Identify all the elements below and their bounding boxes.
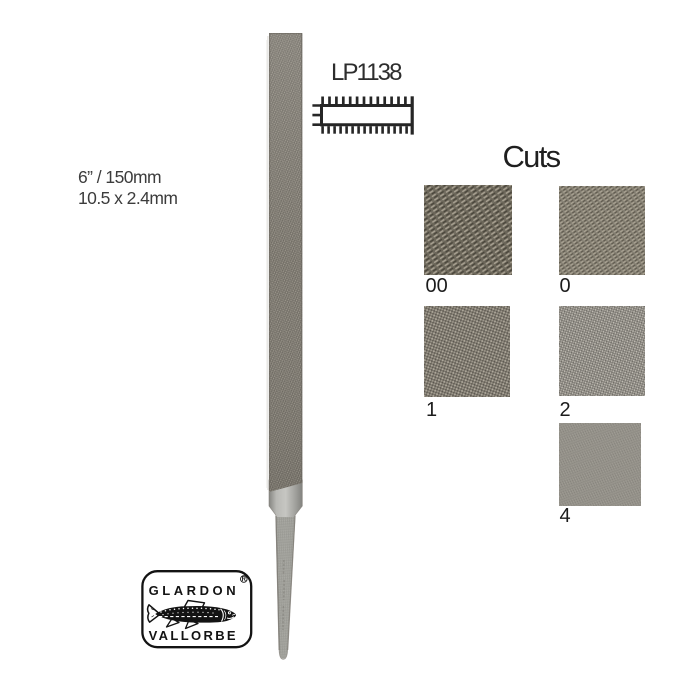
svg-text:R: R	[242, 577, 247, 583]
svg-text:VALLORBE: VALLORBE	[149, 628, 236, 643]
svg-text:GLARDON: GLARDON	[149, 583, 236, 598]
